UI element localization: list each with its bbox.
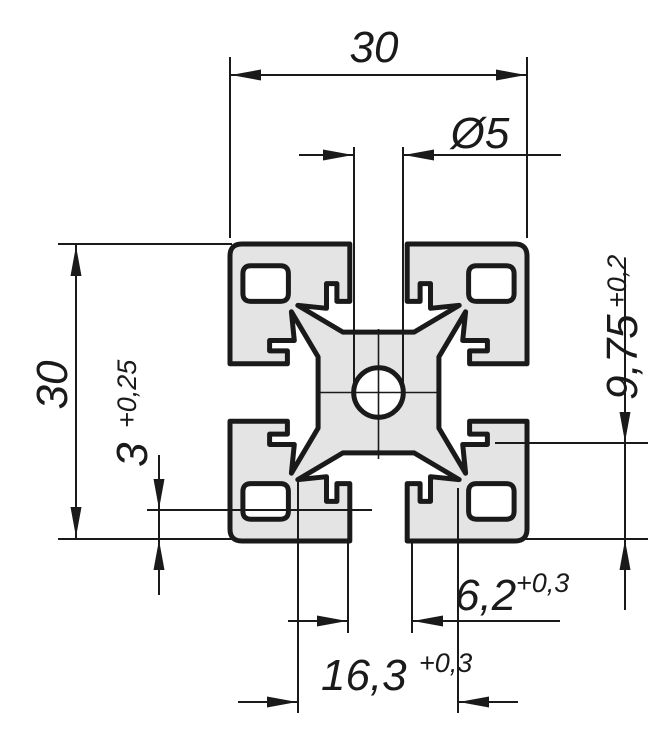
dimension-value: Ø5 xyxy=(449,109,510,158)
arrowhead-top xyxy=(71,246,82,276)
dimension-value: 30 xyxy=(28,360,77,409)
dimension-value: 30 xyxy=(350,23,399,72)
dimension-tolerance: +0,3 xyxy=(419,648,472,678)
dimension-value: 6,2 xyxy=(455,571,516,620)
arrowhead-lower xyxy=(154,540,165,570)
arrowhead-left xyxy=(267,697,297,708)
dimension-slot-opening-width: 6,2 +0,3 xyxy=(288,543,569,633)
arrowhead-bottom xyxy=(71,507,82,537)
arrowhead-left xyxy=(323,150,353,161)
arrowhead-left xyxy=(317,616,347,627)
arrowhead-left xyxy=(231,70,261,81)
arrowhead-lower xyxy=(620,540,631,570)
profile-cross-section xyxy=(230,244,527,541)
arrowhead-upper xyxy=(154,479,165,509)
dimension-tolerance: +0,25 xyxy=(112,359,142,428)
arrowhead-right xyxy=(459,697,489,708)
dimension-value: 3 xyxy=(108,442,157,467)
dimension-value: 16,3 xyxy=(321,651,407,700)
drawing-canvas: 30 Ø5 30 3 +0,25 9,75 +0,2 xyxy=(0,0,672,750)
arrowhead-right xyxy=(413,616,443,627)
dimension-tolerance: +0,3 xyxy=(516,568,569,598)
dimension-tolerance: +0,2 xyxy=(602,255,632,308)
dimension-value: 9,75 xyxy=(598,314,647,400)
profile-drawing: 30 Ø5 30 3 +0,25 9,75 +0,2 xyxy=(0,0,672,750)
arrowhead-right xyxy=(404,150,434,161)
arrowhead-upper xyxy=(620,412,631,442)
arrowhead-right xyxy=(496,70,526,81)
